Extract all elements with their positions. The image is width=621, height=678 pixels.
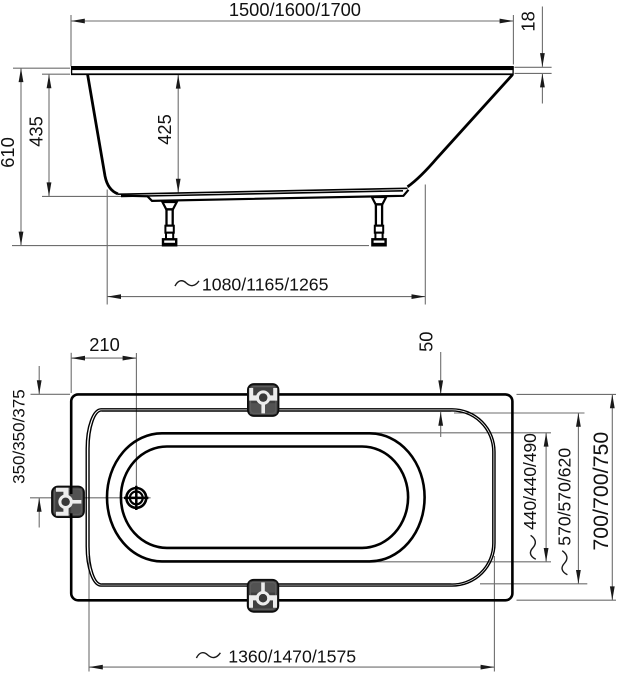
svg-text:1360/1470/1575: 1360/1470/1575	[228, 646, 356, 666]
svg-text:1080/1165/1265: 1080/1165/1265	[202, 275, 329, 295]
svg-text:440/440/490: 440/440/490	[520, 433, 540, 530]
svg-text:1500/1600/1700: 1500/1600/1700	[229, 0, 361, 20]
svg-text:610: 610	[0, 137, 18, 168]
svg-text:350/350/375: 350/350/375	[9, 389, 28, 484]
svg-text:570/570/620: 570/570/620	[554, 448, 574, 546]
svg-text:50: 50	[415, 332, 436, 352]
svg-text:210: 210	[89, 334, 120, 355]
svg-text:18: 18	[517, 11, 538, 31]
svg-text:435: 435	[25, 116, 46, 147]
svg-text:700/700/750: 700/700/750	[589, 432, 613, 551]
svg-text:425: 425	[154, 114, 175, 145]
